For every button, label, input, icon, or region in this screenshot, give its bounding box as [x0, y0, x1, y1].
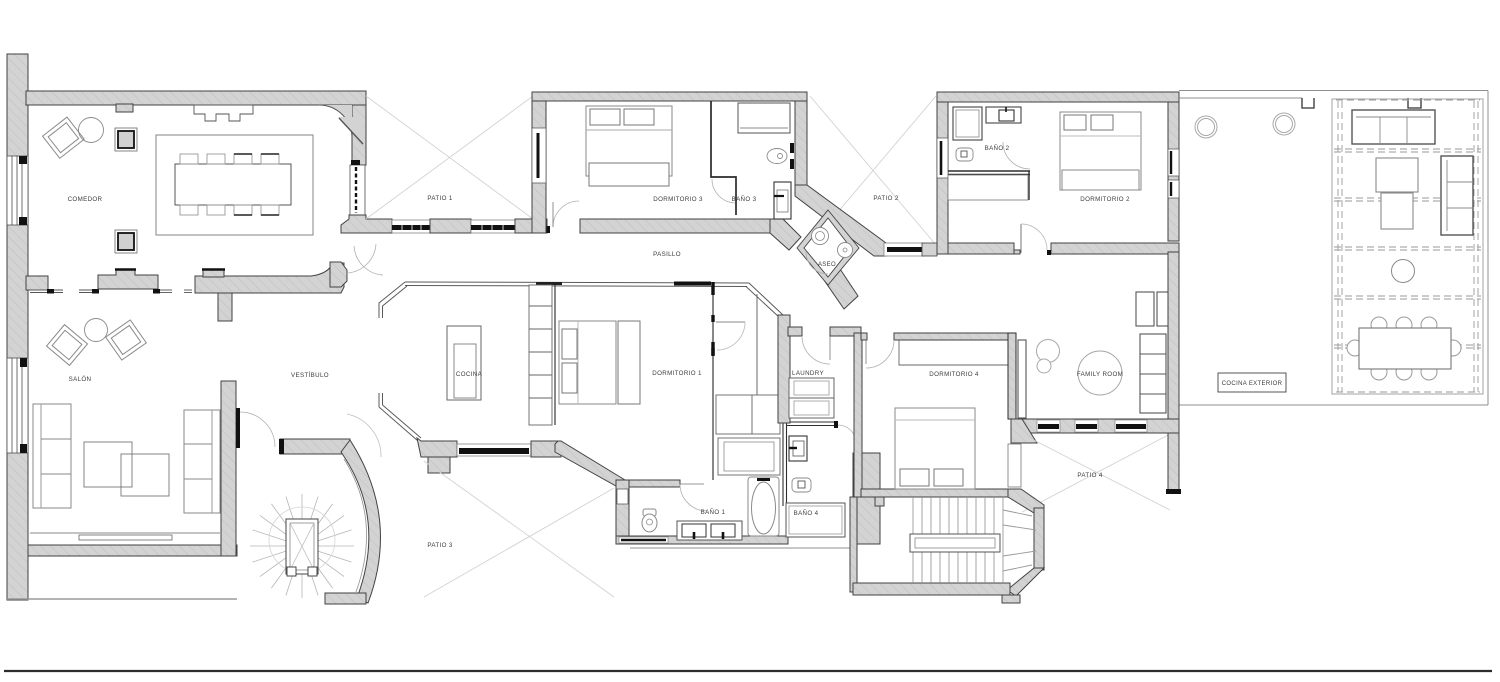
svg-text:PATIO 4: PATIO 4	[1077, 472, 1102, 479]
svg-text:DORMITORIO 1: DORMITORIO 1	[652, 370, 702, 377]
svg-text:LAUNDRY: LAUNDRY	[792, 370, 824, 377]
svg-text:VESTÍBULO: VESTÍBULO	[291, 372, 329, 379]
svg-text:PATIO 3: PATIO 3	[427, 542, 452, 549]
svg-text:BAÑO 1: BAÑO 1	[701, 509, 726, 516]
svg-text:SALÓN: SALÓN	[69, 376, 92, 383]
svg-text:PATIO 2: PATIO 2	[873, 195, 898, 202]
svg-text:COMEDOR: COMEDOR	[68, 196, 103, 203]
svg-text:BAÑO 4: BAÑO 4	[794, 510, 819, 517]
svg-text:FAMILY ROOM: FAMILY ROOM	[1077, 371, 1123, 378]
svg-text:DORMITORIO 3: DORMITORIO 3	[653, 196, 703, 203]
svg-text:DORMITORIO 2: DORMITORIO 2	[1080, 196, 1130, 203]
svg-text:DORMITORIO 4: DORMITORIO 4	[929, 371, 979, 378]
svg-text:BAÑO 2: BAÑO 2	[985, 145, 1010, 152]
svg-text:BAÑO 3: BAÑO 3	[732, 196, 757, 203]
svg-text:COCINA: COCINA	[456, 371, 483, 378]
svg-text:PATIO 1: PATIO 1	[427, 195, 452, 202]
svg-text:COCINA EXTERIOR: COCINA EXTERIOR	[1222, 381, 1283, 387]
svg-text:PASILLO: PASILLO	[653, 251, 681, 258]
svg-text:ASEO: ASEO	[818, 262, 836, 268]
